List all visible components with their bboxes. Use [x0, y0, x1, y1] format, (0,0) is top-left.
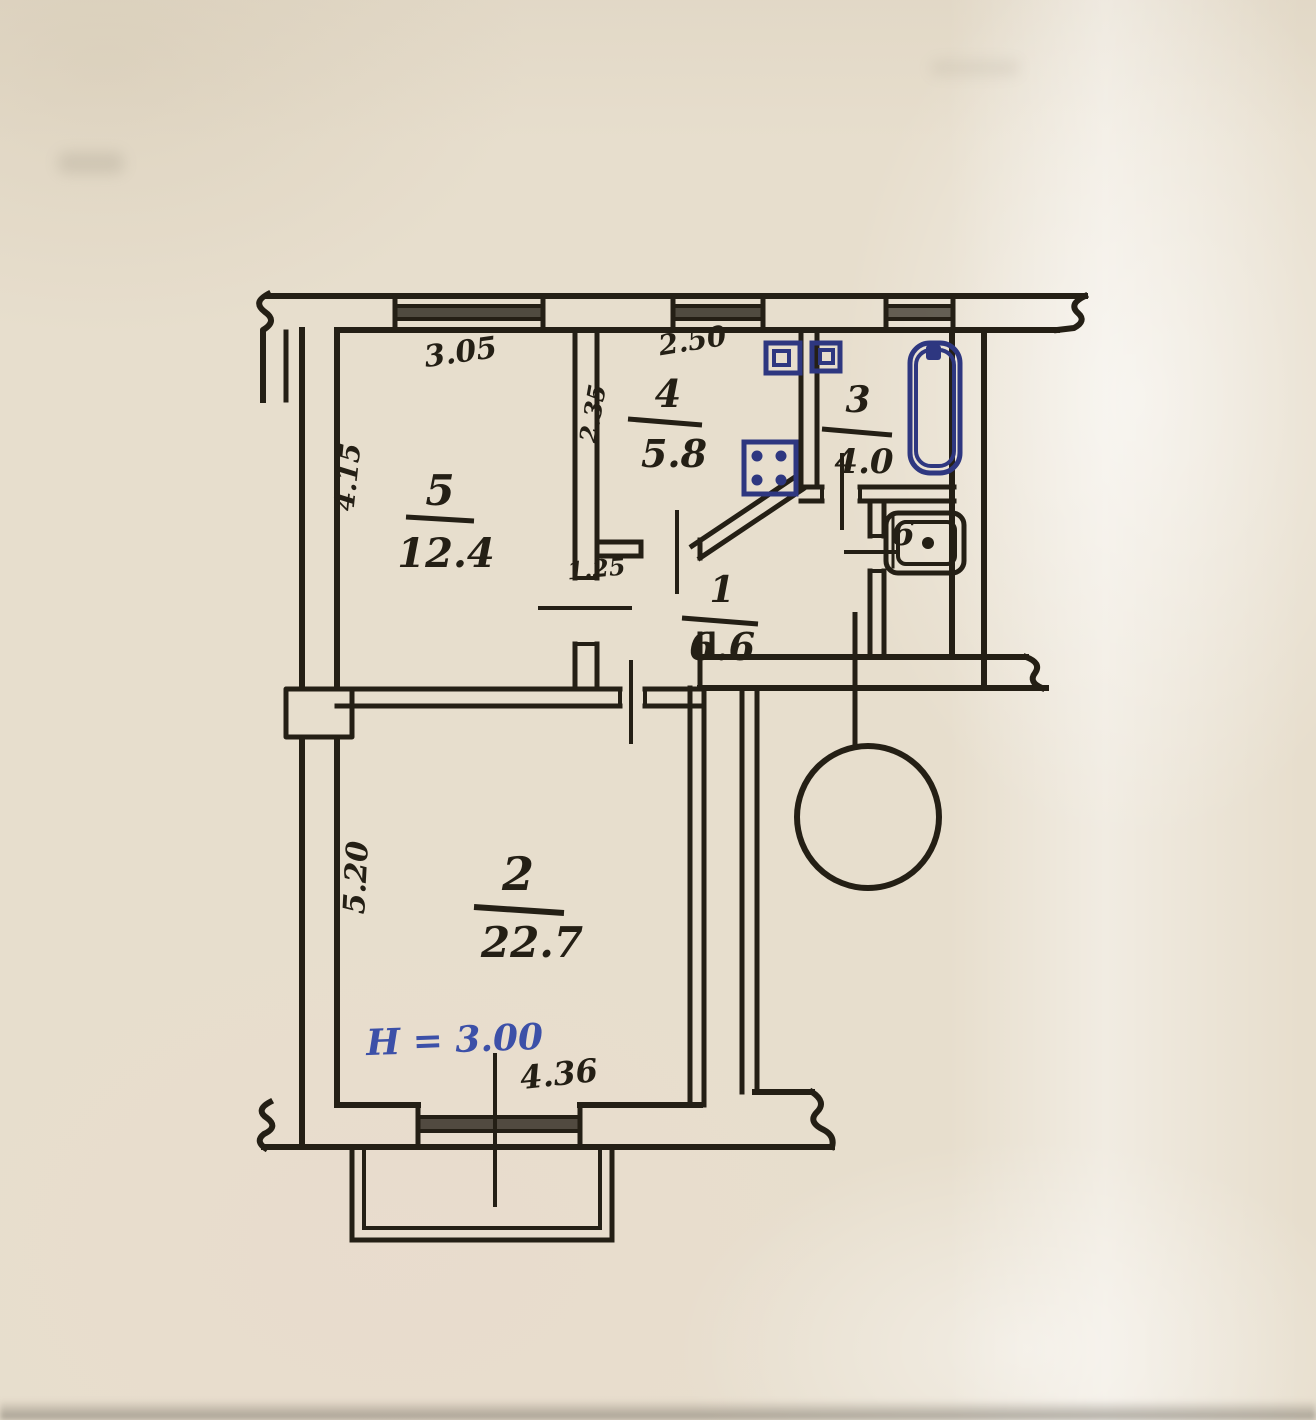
room5-number: 5 — [425, 466, 454, 515]
room5-area: 12.4 — [397, 530, 494, 577]
window-room5 — [395, 296, 543, 330]
wall-break-bottom-left — [260, 1102, 273, 1148]
floor-plan-scan: 5 12.4 4 5.8 3 4.0 1 6.6 6 2 22.7 3.05 2… — [0, 0, 1316, 1420]
ceiling-height-note: Н = 3.00 — [364, 1016, 543, 1064]
room1-number: 1 — [709, 569, 734, 611]
dim-room4-width: 2.50 — [655, 319, 729, 362]
room-labels: 5 12.4 4 5.8 3 4.0 1 6.6 6 2 22.7 — [397, 371, 915, 967]
wall-break-top-left — [259, 294, 271, 400]
wall-break-mid-right — [1026, 657, 1042, 688]
wall-break-top-right — [1057, 296, 1085, 330]
dim-hall-width: 1.25 — [566, 552, 627, 586]
room3-number: 3 — [845, 379, 870, 421]
wall-break-bottom-right — [812, 1092, 833, 1147]
room2-fraction-line — [474, 907, 564, 913]
dim-room2-depth: 5.20 — [337, 840, 376, 915]
room2-area: 22.7 — [480, 918, 583, 967]
dim-room5-width: 3.05 — [422, 330, 499, 375]
dim-room4-depth: 2.35 — [573, 382, 612, 446]
window-bathroom — [886, 296, 953, 330]
dim-room5-depth: 4.15 — [328, 441, 368, 512]
room4-number: 4 — [655, 371, 681, 416]
room4-fraction-line — [628, 419, 702, 425]
balcony — [352, 1147, 612, 1240]
bathtub-icon — [910, 343, 960, 473]
kitchen-chamfer-wall — [692, 477, 803, 558]
room4-area: 5.8 — [641, 431, 707, 476]
floor-plan-canvas: 5 12.4 4 5.8 3 4.0 1 6.6 6 2 22.7 3.05 2… — [0, 0, 1316, 1420]
room3-area: 4.0 — [834, 442, 893, 482]
room3-fraction-line — [822, 429, 892, 435]
room2-number: 2 — [501, 847, 534, 901]
wall-pilaster — [286, 689, 352, 737]
stove-icon — [744, 442, 796, 494]
room6-number: 6 — [891, 514, 915, 554]
window-room2-balcony — [418, 1105, 580, 1147]
room1-area: 6.6 — [689, 624, 755, 669]
room5-fraction-line — [406, 517, 474, 521]
